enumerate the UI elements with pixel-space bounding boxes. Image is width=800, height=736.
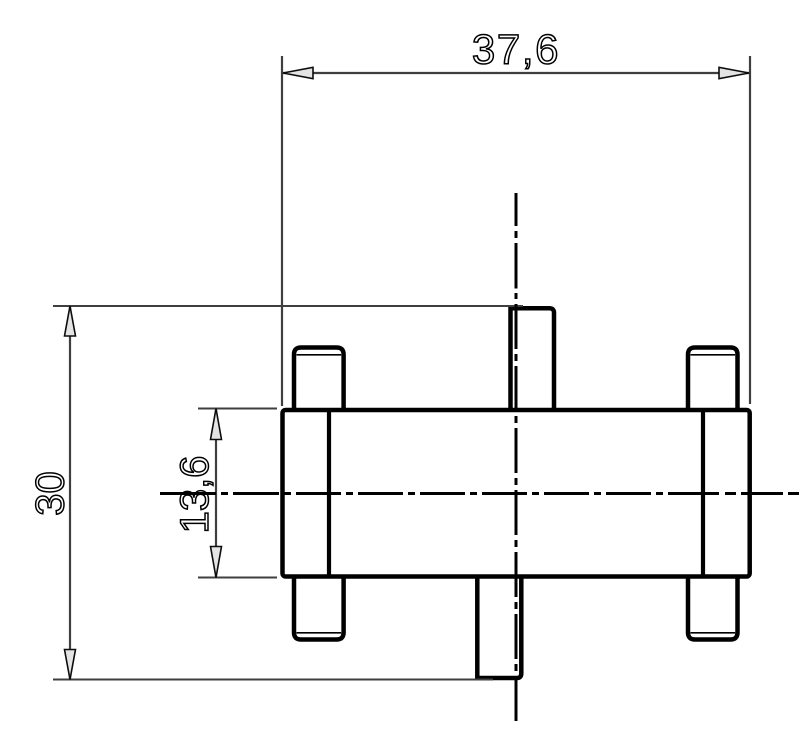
svg-text:37,6: 37,6 [472,26,560,73]
svg-text:30: 30 [29,471,73,516]
